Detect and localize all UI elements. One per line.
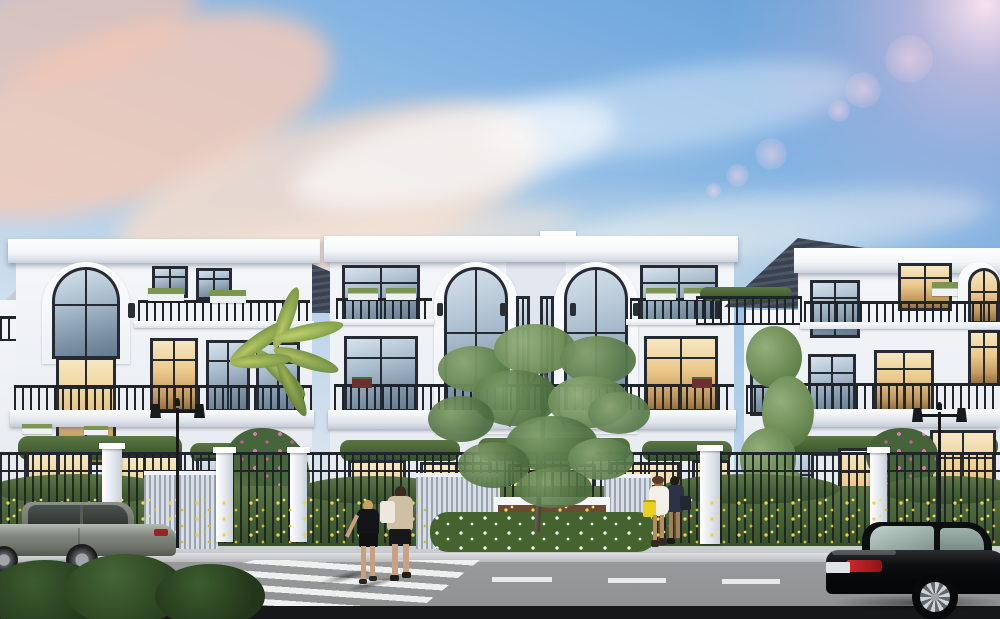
leg [403, 544, 409, 574]
car-hub [931, 593, 939, 601]
woman-front-boots [659, 538, 667, 545]
right-balcony-base [796, 409, 1000, 427]
shoe [390, 575, 399, 581]
fence-post-cap [287, 447, 310, 453]
foreground-bush [0, 550, 255, 619]
woman-front-boots [651, 540, 659, 547]
license-plate [826, 562, 850, 573]
right-arch-window-lower [968, 330, 1000, 386]
car-glass [28, 505, 128, 525]
tree-foliage [588, 392, 650, 434]
car-b-pillar [80, 505, 83, 525]
leg [361, 546, 366, 580]
woman-front-leg [653, 515, 657, 541]
woman-front-leg [660, 515, 664, 540]
shoe [369, 576, 377, 581]
tree-foliage [516, 468, 592, 508]
car-black-coupe [826, 520, 1000, 619]
car-taillight [154, 529, 168, 536]
woman-back-leg [669, 512, 673, 539]
top [357, 509, 379, 535]
lamp-finial [937, 402, 942, 410]
palm-tree [232, 296, 352, 446]
lane-dash [722, 579, 780, 584]
fence-post-cap [697, 445, 723, 451]
car-trunk-highlight [832, 550, 896, 555]
lamp-head [912, 408, 923, 422]
lamp-finial [175, 398, 180, 406]
pedestrian-man [383, 486, 417, 588]
pedestrian-woman [354, 500, 384, 590]
car-rear-glass [870, 526, 934, 552]
woman-back-bag [680, 496, 691, 510]
car-side-glass [940, 528, 984, 552]
bush-blob [155, 564, 265, 619]
leg [370, 546, 375, 578]
lamp-head [956, 408, 967, 422]
lamp-head [150, 404, 161, 418]
car-taillight [846, 560, 882, 572]
right-terrace-fascia [800, 322, 1000, 329]
woman-back-heels [667, 538, 675, 544]
fence-post-cap [213, 447, 236, 453]
lamp-head [194, 404, 205, 418]
leg [392, 544, 398, 576]
woman-back-leg [676, 512, 680, 538]
architectural-render [0, 0, 1000, 619]
fence-post-cap [99, 443, 125, 449]
lane-dash [492, 577, 552, 582]
shorts [359, 533, 378, 547]
fence-post-cap [867, 447, 890, 453]
shoe [402, 572, 411, 578]
shoe [359, 579, 367, 584]
tree-foliage [428, 396, 494, 442]
woman-front-hair [652, 476, 664, 484]
pedestrian-women-pair [648, 476, 694, 554]
shade-tree-center [420, 318, 660, 530]
lane-dash [608, 578, 666, 583]
